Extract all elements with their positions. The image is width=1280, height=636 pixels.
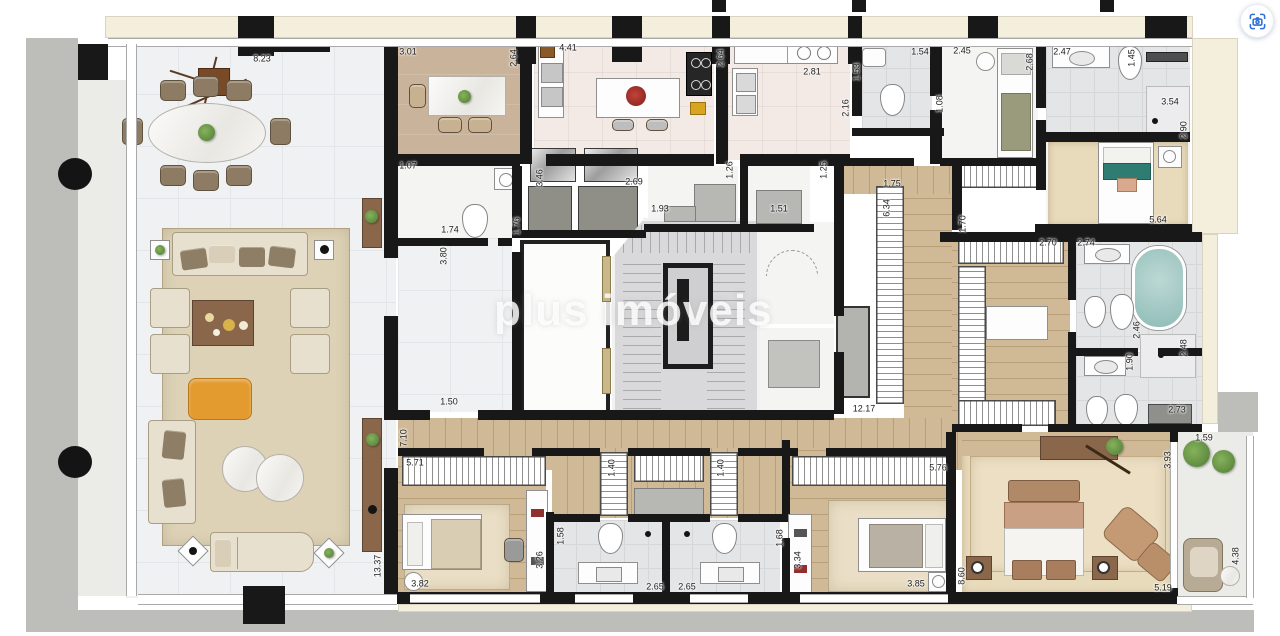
- dimension-label: 3.01: [399, 48, 417, 57]
- dimension-label: 3.26: [536, 551, 545, 569]
- dimension-label: 12.17: [853, 405, 876, 414]
- dimension-label: 13.37: [374, 555, 383, 578]
- dimension-label: 1.54: [911, 48, 929, 57]
- dimension-label: 3.80: [440, 247, 449, 265]
- dimension-label: 1.93: [651, 205, 669, 214]
- watermark: plus imóveis: [494, 289, 773, 333]
- dimension-label: 2.16: [842, 99, 851, 117]
- dimension-label: 5.19: [1154, 584, 1172, 593]
- dimension-label: 2.70: [1039, 239, 1057, 248]
- dimension-label: 1.58: [557, 527, 566, 545]
- dimension-label: 2.68: [1026, 53, 1035, 71]
- dimension-label: 2.73: [1168, 406, 1186, 415]
- visual-search-button[interactable]: [1240, 4, 1274, 38]
- dimension-label: 5.76: [929, 464, 947, 473]
- dimension-label: 2.64: [510, 49, 519, 67]
- dimension-label: 1.90: [1126, 353, 1135, 371]
- dimension-label: 3.54: [1161, 98, 1179, 107]
- dimension-label: 2.64: [717, 49, 726, 67]
- dimension-label: 1.25: [820, 161, 829, 179]
- dimension-label: 3.85: [907, 580, 925, 589]
- dimension-label: 1.59: [1195, 434, 1213, 443]
- dimension-label: 2.74: [1077, 239, 1095, 248]
- dimension-label: 1.53: [853, 63, 862, 81]
- dimension-label: 1.45: [1128, 49, 1137, 67]
- floor-plan: 8.233.012.644.412.642.811.531.542.452.16…: [0, 0, 1280, 636]
- dimension-label: 5.71: [406, 459, 424, 468]
- dimension-label: 4.38: [1232, 547, 1241, 565]
- dimension-label: 1.50: [440, 398, 458, 407]
- dimension-label: 1.74: [441, 226, 459, 235]
- dimension-label: 1.40: [608, 459, 617, 477]
- dimension-label: 8.60: [958, 567, 967, 585]
- dimension-label: 3.34: [794, 551, 803, 569]
- dimension-label: 1.75: [883, 180, 901, 189]
- dimension-label: 5.64: [1149, 216, 1167, 225]
- dimension-label: 2.45: [953, 47, 971, 56]
- dimension-label: 2.47: [1053, 48, 1071, 57]
- dimension-label: 1.26: [726, 161, 735, 179]
- dimension-label: 2.65: [646, 583, 664, 592]
- dimension-label: 8.23: [253, 55, 271, 64]
- dimension-label: 7.10: [400, 429, 409, 447]
- dimension-label: 6.34: [883, 199, 892, 217]
- dimension-label: 3.46: [536, 169, 545, 187]
- dimension-label: 2.46: [1133, 321, 1142, 339]
- dimension-label: 1.76: [513, 217, 522, 235]
- dimension-label: 1.68: [776, 529, 785, 547]
- dimension-label: 1.51: [770, 205, 788, 214]
- dimension-label: 3.82: [411, 580, 429, 589]
- dimension-label: 2.65: [678, 583, 696, 592]
- dimension-label: 1.70: [959, 215, 968, 233]
- dimension-label: 4.41: [559, 44, 577, 53]
- dimension-label: 3.93: [1164, 451, 1173, 469]
- camera-visual-search-icon: [1248, 12, 1267, 31]
- dimension-label: 1.07: [399, 162, 417, 171]
- dimension-label: 2.69: [625, 178, 643, 187]
- dimension-label: 2.90: [1180, 121, 1189, 139]
- dimension-label: 1.40: [717, 459, 726, 477]
- dimension-label: 2.48: [1180, 339, 1189, 357]
- dimension-label: 1.08: [936, 95, 945, 113]
- dimension-label: 2.81: [803, 68, 821, 77]
